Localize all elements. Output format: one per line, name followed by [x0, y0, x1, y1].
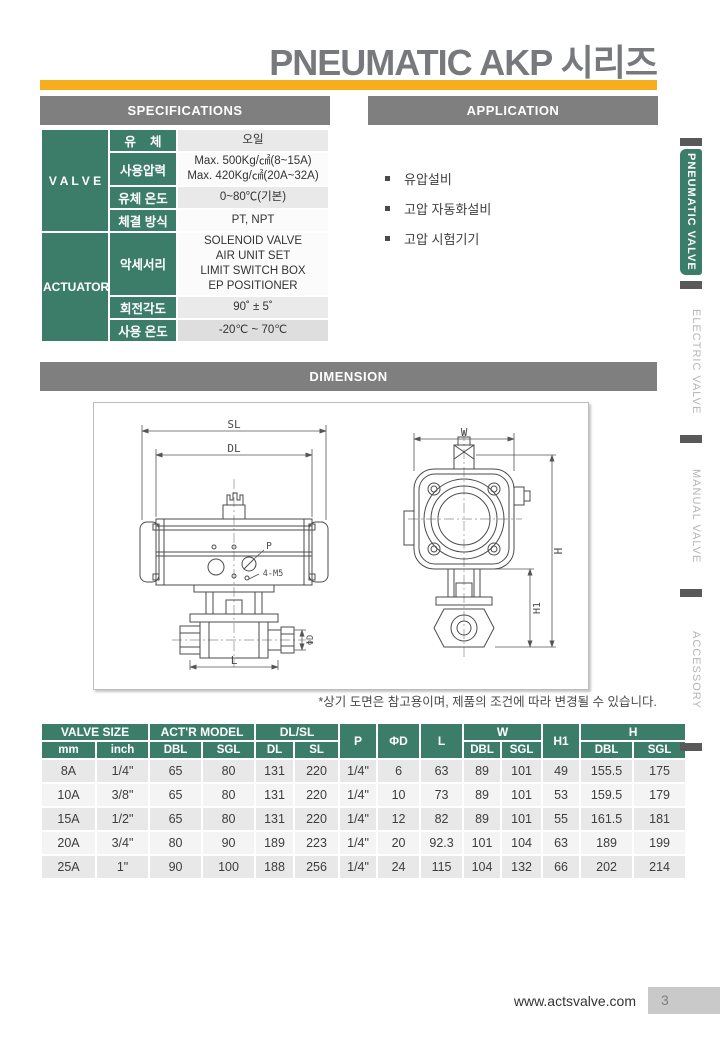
sidebar-divider-bar	[680, 743, 702, 751]
dim-label-dl: DL	[227, 442, 241, 455]
table-cell: 1/4"	[340, 856, 376, 878]
dim-label-phi-d: ΦD	[306, 635, 316, 645]
table-row: 20A3/4"80901892231/4"2092.31011046318919…	[42, 832, 685, 854]
sidebar-tab-electric-valve[interactable]: ELECTRIC VALVE	[680, 289, 702, 435]
bullet-icon	[385, 236, 390, 241]
table-cell: 92.3	[421, 832, 462, 854]
table-cell: 1/2"	[97, 808, 148, 830]
table-cell: 175	[634, 760, 685, 782]
dim-table-header: VALVE SIZE	[42, 724, 148, 740]
application-header: APPLICATION	[368, 96, 658, 125]
table-cell: 161.5	[581, 808, 632, 830]
table-cell: 181	[634, 808, 685, 830]
table-cell: 104	[502, 832, 541, 854]
dim-table-header: P	[340, 724, 376, 758]
table-cell: 220	[295, 808, 338, 830]
table-cell: 80	[150, 832, 201, 854]
sidebar-divider-bar	[680, 435, 702, 443]
application-item: 유압설비	[385, 163, 658, 193]
dim-label-l: L	[231, 654, 238, 667]
table-cell: 189	[581, 832, 632, 854]
dim-table-subheader: DBL	[464, 742, 500, 758]
spec-value-cell: Max. 500Kg/㎠(8~15A) Max. 420Kg/㎠(20A~32A…	[178, 153, 328, 185]
table-cell: 20A	[42, 832, 95, 854]
table-row: 8A1/4"65801312201/4"6638910149155.5175	[42, 760, 685, 782]
table-cell: 65	[150, 784, 201, 806]
table-cell: 49	[543, 760, 579, 782]
table-row: 10A3/8"65801312201/4"10738910153159.5179	[42, 784, 685, 806]
dim-table-subheader: SGL	[502, 742, 541, 758]
table-row: 15A1/2"65801312201/4"12828910155161.5181	[42, 808, 685, 830]
spec-label-cell: 사용압력	[110, 153, 176, 185]
table-cell: 8A	[42, 760, 95, 782]
table-cell: 189	[256, 832, 293, 854]
table-cell: 12	[378, 808, 419, 830]
spec-value-cell: PT, NPT	[178, 210, 328, 231]
spec-group-cell: V A L V E	[42, 130, 108, 231]
table-cell: 66	[543, 856, 579, 878]
spec-row: V A L V E유 체오일	[42, 130, 328, 151]
title-accent-bar	[40, 80, 657, 90]
table-cell: 25A	[42, 856, 95, 878]
table-cell: 199	[634, 832, 685, 854]
table-cell: 65	[150, 808, 201, 830]
spec-label-cell: 사용 온도	[110, 320, 176, 341]
table-row: 25A1"901001882561/4"2411510413266202214	[42, 856, 685, 878]
table-cell: 155.5	[581, 760, 632, 782]
table-cell: 101	[502, 760, 541, 782]
dim-table-subheader: DBL	[150, 742, 201, 758]
table-cell: 101	[502, 784, 541, 806]
sidebar-divider-bar	[680, 138, 702, 146]
dim-table-subheader: SL	[295, 742, 338, 758]
side-view-drawing: W H H1	[402, 427, 577, 667]
table-cell: 220	[295, 784, 338, 806]
table-cell: 3/8"	[97, 784, 148, 806]
table-cell: 131	[256, 784, 293, 806]
spec-value-cell: 0~80℃(기본)	[178, 187, 328, 208]
dim-table-subheader: DBL	[581, 742, 632, 758]
table-cell: 256	[295, 856, 338, 878]
dim-table-header: W	[464, 724, 541, 740]
dim-table-header: ΦD	[378, 724, 419, 758]
application-item: 고압 자동화설비	[385, 193, 658, 223]
table-cell: 214	[634, 856, 685, 878]
application-list: 유압설비고압 자동화설비고압 시험기기	[368, 163, 658, 253]
dim-label-h1: H1	[532, 602, 543, 614]
sidebar-divider-bar	[680, 589, 702, 597]
dimension-note: *상기 도면은 참고용이며, 제품의 조건에 따라 변경될 수 있습니다.	[318, 691, 657, 710]
spec-value-cell: -20℃ ~ 70℃	[178, 320, 328, 341]
dim-label-4m5: 4-M5	[263, 569, 283, 579]
dim-table-header: ACT'R MODEL	[150, 724, 254, 740]
spec-label-cell: 악세서리	[110, 233, 176, 295]
table-cell: 1/4"	[340, 832, 376, 854]
table-cell: 188	[256, 856, 293, 878]
table-cell: 80	[203, 760, 254, 782]
table-cell: 179	[634, 784, 685, 806]
table-cell: 1/4"	[340, 760, 376, 782]
table-cell: 65	[150, 760, 201, 782]
dim-table-subheader: SGL	[634, 742, 685, 758]
table-cell: 101	[502, 808, 541, 830]
table-cell: 1/4"	[340, 808, 376, 830]
dimension-drawing-panel: SL DL P 4-M5 L ΦD	[93, 402, 589, 690]
specifications-header: SPECIFICATIONS	[40, 96, 330, 125]
spec-label-cell: 유체 온도	[110, 187, 176, 208]
dim-table-subheader: mm	[42, 742, 95, 758]
table-cell: 90	[203, 832, 254, 854]
table-cell: 53	[543, 784, 579, 806]
spec-label-cell: 체결 방식	[110, 210, 176, 231]
bullet-icon	[385, 206, 390, 211]
application-item: 고압 시험기기	[385, 223, 658, 253]
table-cell: 101	[464, 832, 500, 854]
dim-label-w: W	[461, 427, 468, 439]
sidebar-tab-pneumatic-valve[interactable]: PNEUMATIC VALVE	[680, 149, 702, 275]
dim-table-subheader: DL	[256, 742, 293, 758]
table-cell: 115	[421, 856, 462, 878]
table-cell: 20	[378, 832, 419, 854]
table-cell: 223	[295, 832, 338, 854]
table-cell: 89	[464, 808, 500, 830]
table-cell: 63	[543, 832, 579, 854]
front-view-drawing: SL DL P 4-M5 L ΦD	[136, 417, 386, 673]
spec-label-cell: 유 체	[110, 130, 176, 151]
page-number-badge: 3	[648, 987, 720, 1014]
table-cell: 1"	[97, 856, 148, 878]
dim-table-header: H	[581, 724, 685, 740]
dim-table-header: L	[421, 724, 462, 758]
table-cell: 80	[203, 808, 254, 830]
specifications-section: SPECIFICATIONS V A L V E유 체오일사용압력Max. 50…	[40, 96, 330, 343]
dim-label-p: P	[266, 541, 272, 552]
bullet-icon	[385, 176, 390, 181]
table-cell: 159.5	[581, 784, 632, 806]
table-cell: 10A	[42, 784, 95, 806]
table-cell: 131	[256, 760, 293, 782]
table-cell: 73	[421, 784, 462, 806]
dim-table-header: DL/SL	[256, 724, 338, 740]
table-cell: 1/4"	[340, 784, 376, 806]
application-section: APPLICATION 유압설비고압 자동화설비고압 시험기기	[368, 96, 658, 253]
dim-label-sl: SL	[227, 418, 241, 431]
dim-table-subheader: SGL	[203, 742, 254, 758]
table-cell: 220	[295, 760, 338, 782]
table-cell: 1/4"	[97, 760, 148, 782]
sidebar-divider-bar	[680, 281, 702, 289]
dimension-header: DIMENSION	[40, 362, 657, 391]
table-cell: 104	[464, 856, 500, 878]
table-cell: 10	[378, 784, 419, 806]
dim-table-subheader: inch	[97, 742, 148, 758]
dimension-table: VALVE SIZEACT'R MODELDL/SLPΦDLWH1Hmminch…	[40, 722, 687, 880]
table-cell: 202	[581, 856, 632, 878]
table-cell: 15A	[42, 808, 95, 830]
spec-table: V A L V E유 체오일사용압력Max. 500Kg/㎠(8~15A) Ma…	[40, 128, 330, 343]
dim-label-h: H	[552, 548, 565, 555]
table-cell: 131	[256, 808, 293, 830]
sidebar-tab-manual-valve[interactable]: MANUAL VALVE	[680, 443, 702, 589]
table-cell: 82	[421, 808, 462, 830]
table-cell: 80	[203, 784, 254, 806]
table-cell: 89	[464, 784, 500, 806]
table-cell: 3/4"	[97, 832, 148, 854]
spec-value-cell: 오일	[178, 130, 328, 151]
spec-value-cell: 90˚ ± 5˚	[178, 297, 328, 318]
table-cell: 132	[502, 856, 541, 878]
spec-row: ACTUATOR악세서리SOLENOID VALVE AIR UNIT SET …	[42, 233, 328, 295]
spec-label-cell: 회전각도	[110, 297, 176, 318]
application-item-label: 고압 자동화설비	[404, 199, 491, 218]
dim-table-header: H1	[543, 724, 579, 758]
table-cell: 55	[543, 808, 579, 830]
sidebar-tab-accessory[interactable]: ACCESSORY	[680, 597, 702, 743]
table-cell: 6	[378, 760, 419, 782]
application-item-label: 유압설비	[404, 169, 452, 188]
spec-value-cell: SOLENOID VALVE AIR UNIT SET LIMIT SWITCH…	[178, 233, 328, 295]
table-cell: 24	[378, 856, 419, 878]
spec-group-cell: ACTUATOR	[42, 233, 108, 341]
table-cell: 89	[464, 760, 500, 782]
table-cell: 90	[150, 856, 201, 878]
table-cell: 63	[421, 760, 462, 782]
page-title: PNEUMATIC AKP 시리즈	[269, 34, 657, 86]
category-sidebar: PNEUMATIC VALVEELECTRIC VALVEMANUAL VALV…	[680, 138, 702, 751]
application-item-label: 고압 시험기기	[404, 229, 479, 248]
table-cell: 100	[203, 856, 254, 878]
website-link[interactable]: www.actsvalve.com	[514, 993, 636, 1009]
